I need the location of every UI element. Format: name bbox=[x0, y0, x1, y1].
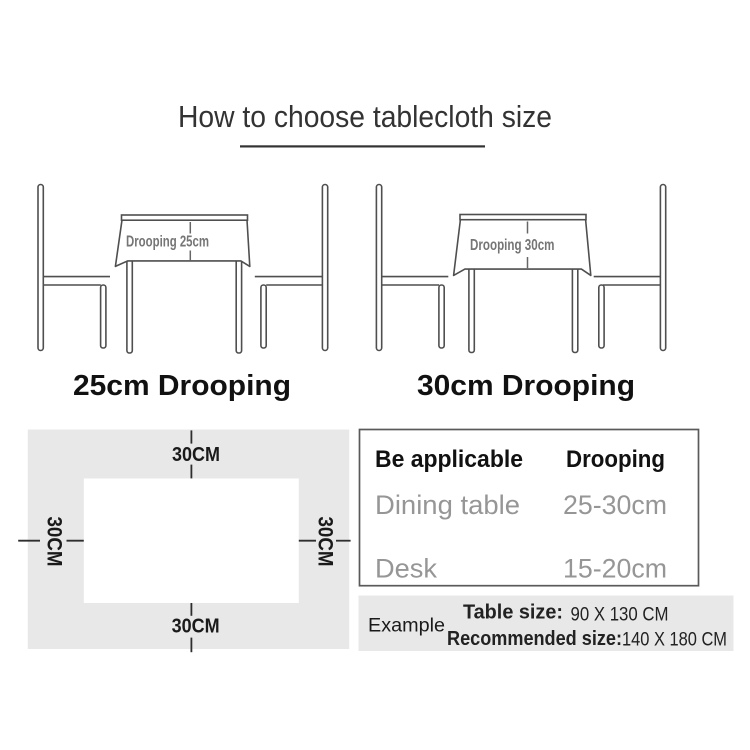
svg-text:Recommended size:: Recommended size: bbox=[447, 628, 622, 650]
svg-text:25-30cm: 25-30cm bbox=[563, 490, 667, 520]
svg-text:30cm Drooping: 30cm Drooping bbox=[417, 370, 635, 402]
svg-text:140 X 180 CM: 140 X 180 CM bbox=[622, 630, 727, 651]
svg-text:30CM: 30CM bbox=[314, 517, 337, 567]
svg-text:15-20cm: 15-20cm bbox=[563, 554, 667, 584]
svg-text:Drooping 30cm: Drooping 30cm bbox=[470, 237, 555, 254]
svg-text:Table size:: Table size: bbox=[463, 602, 563, 624]
svg-text:90 X 130 CM: 90 X 130 CM bbox=[571, 605, 669, 626]
svg-text:Desk: Desk bbox=[375, 554, 438, 584]
svg-text:25cm Drooping: 25cm Drooping bbox=[73, 370, 291, 402]
svg-text:30CM: 30CM bbox=[172, 444, 220, 466]
svg-text:30CM: 30CM bbox=[43, 517, 66, 567]
svg-text:Be applicable: Be applicable bbox=[375, 446, 523, 473]
svg-text:Drooping: Drooping bbox=[566, 446, 665, 473]
svg-text:Dining table: Dining table bbox=[375, 490, 520, 520]
svg-text:30CM: 30CM bbox=[172, 616, 220, 638]
svg-text:Example: Example bbox=[368, 616, 445, 637]
svg-text:How to choose tablecloth size: How to choose tablecloth size bbox=[178, 99, 552, 134]
svg-text:Drooping 25cm: Drooping 25cm bbox=[126, 234, 209, 251]
